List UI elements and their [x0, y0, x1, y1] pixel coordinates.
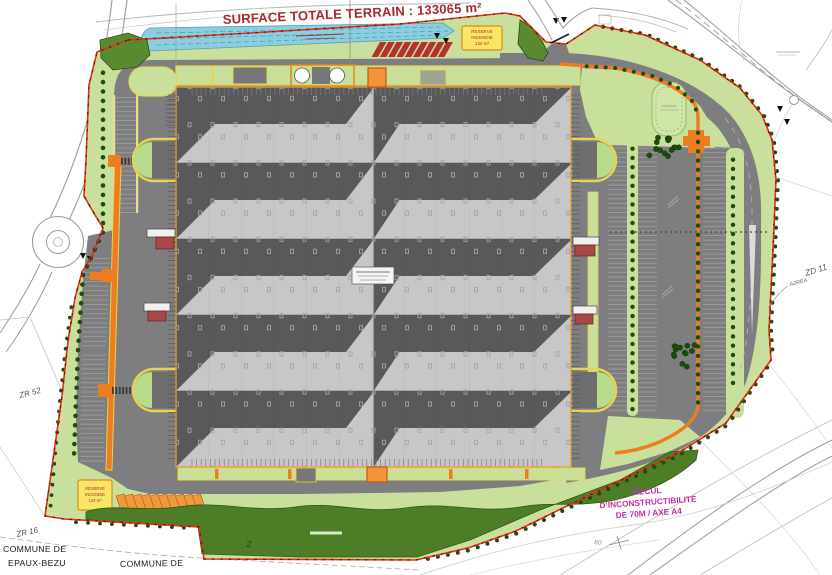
svg-text:RESERVE: RESERVE [85, 486, 105, 491]
svg-text:RECUL: RECUL [633, 485, 662, 497]
svg-text:COMMUNE DE: COMMUNE DE [120, 558, 184, 569]
svg-text:RESERVE: RESERVE [471, 29, 492, 34]
svg-text:EPAUX-BEZU: EPAUX-BEZU [8, 558, 66, 568]
svg-text:COMMUNE DE: COMMUNE DE [3, 544, 66, 554]
svg-text:INCENDIE: INCENDIE [471, 35, 493, 40]
svg-text:60: 60 [594, 539, 603, 547]
svg-text:120 m³: 120 m³ [88, 498, 102, 503]
svg-text:120 m³: 120 m³ [475, 41, 490, 46]
svg-text:INCENDIE: INCENDIE [85, 492, 105, 497]
